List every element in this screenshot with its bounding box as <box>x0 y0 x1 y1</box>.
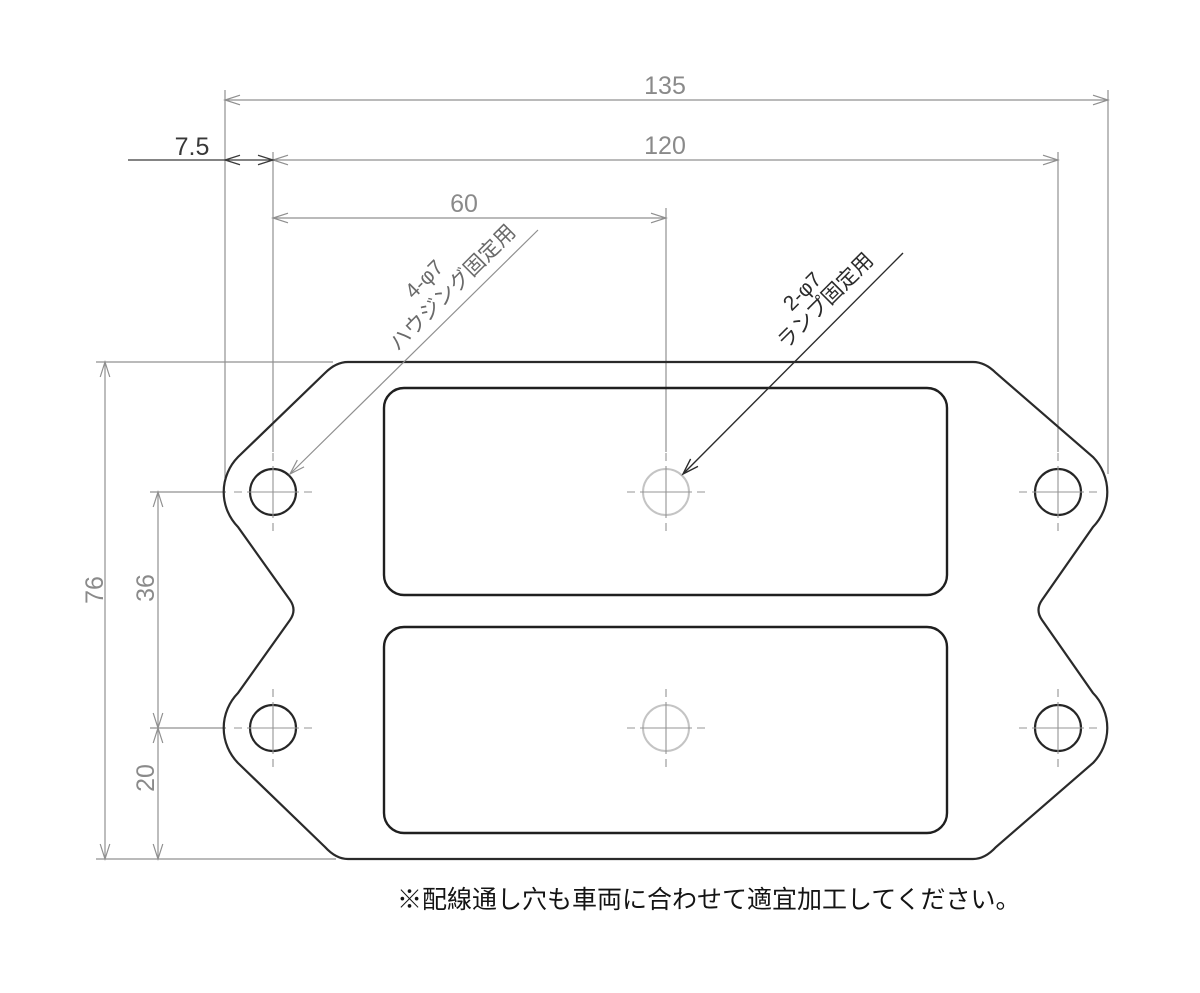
hole-center-marks <box>234 453 1097 767</box>
extension-lines <box>96 90 1108 859</box>
note-text: ※配線通し穴も車両に合わせて適宜加工してください。 <box>397 886 1021 914</box>
dim-overall-height: 76 <box>81 576 109 604</box>
dim-edge-to-first-hole: 7.5 <box>175 133 210 161</box>
dim-overall-width: 135 <box>644 72 686 100</box>
callout-lamp-holes: 2-φ7 ランプ固定用 <box>757 232 878 353</box>
technical-drawing-sheet: 135 120 60 7.5 76 36 20 4-φ7 <box>0 0 1200 993</box>
mounting-plate-drawing: 135 120 60 7.5 76 36 20 4-φ7 <box>0 0 1200 993</box>
dim-bottom-hole-offset: 20 <box>132 764 160 792</box>
dim-hole-span-width: 120 <box>644 132 686 160</box>
dim-center-hole-offset: 60 <box>450 190 478 218</box>
dim-hole-row-spacing: 36 <box>132 574 160 602</box>
leader-housing-holes <box>290 230 538 474</box>
callout-housing-holes: 4-φ7 ハウジング固定用 <box>367 202 520 355</box>
dimension-lines <box>105 100 1108 859</box>
